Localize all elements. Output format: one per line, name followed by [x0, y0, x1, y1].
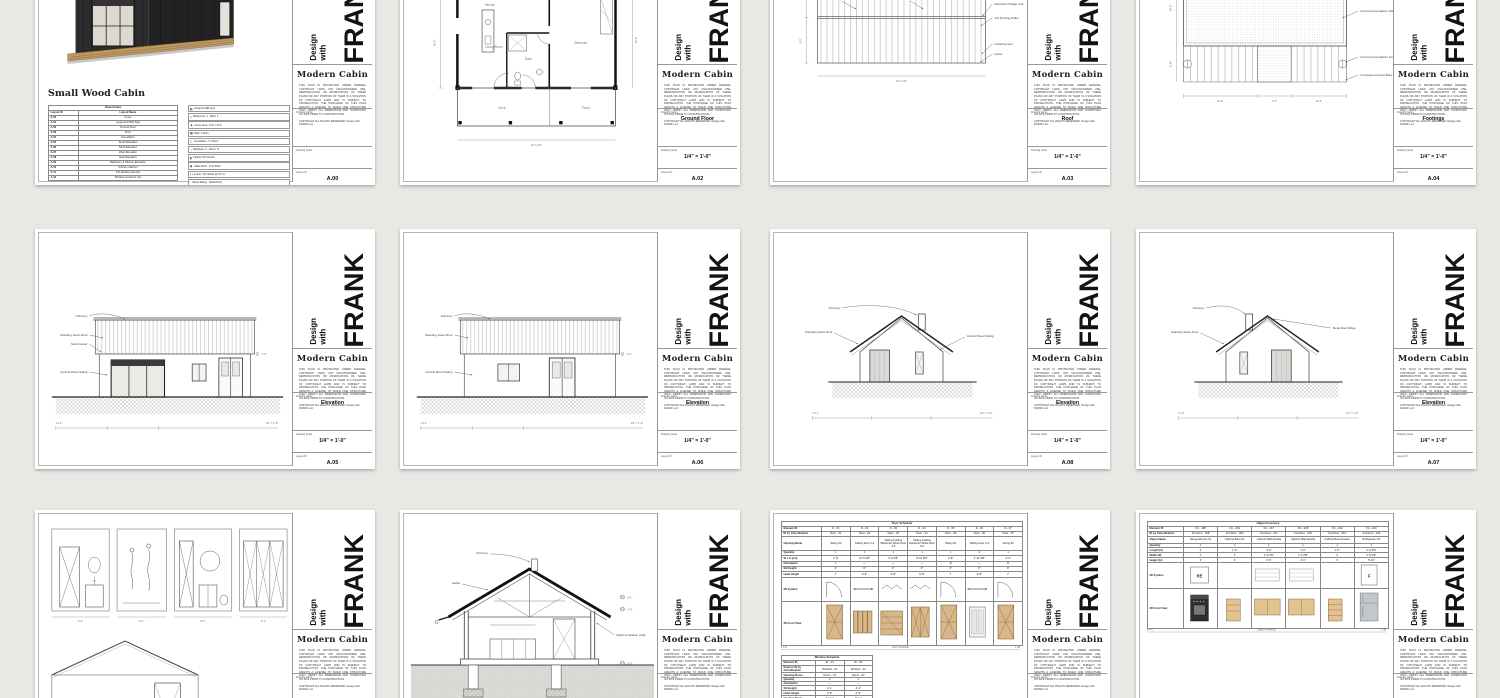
cover-legend-item: ◔Windows: 2 · Doors: 8 [188, 146, 290, 153]
sheet-elevation-south[interactable]: Chimney Standing Seam Roof Metal Gutter … [35, 229, 375, 469]
table-row: A.12Window and Door List [49, 176, 178, 181]
elevation-drawing: Chimney Standing Seam Roof Metal Roof Ri… [1139, 232, 1394, 466]
scale-note: 1/4" = 1'-0" [1346, 411, 1359, 415]
table-cell [965, 578, 994, 602]
scale-bar-label: 0 2 4 [1179, 411, 1185, 415]
logo-design-with: Designwith [674, 318, 693, 345]
table-cell [1184, 563, 1218, 589]
elevation-marker: 7'-6" [626, 352, 631, 356]
legend-icon: △ [190, 139, 192, 143]
logo-design-with: Designwith [309, 318, 328, 345]
row-label: Object Name [1148, 537, 1184, 544]
dimension-label: 16'-5" [1169, 5, 1173, 12]
layout-id-field: Layout IDA.04 [1394, 168, 1473, 182]
project-title: Modern Cabin [658, 630, 737, 649]
annotation-label: Chimney [829, 306, 841, 310]
sheet-index-table: Sheet IndexLayout IDLayout NameA.00Cover… [48, 105, 178, 181]
table-cell [994, 602, 1023, 646]
table-cell: Cabinet Base Drawer [1320, 537, 1354, 544]
scale-note: 1/4" = 1'-0" [631, 421, 644, 425]
annotation-label: Metal Roof Ridge Cap [994, 2, 1023, 6]
legend-icon: ◧ [190, 107, 193, 111]
logo-frank: FRANK [704, 0, 735, 63]
project-title: Modern Cabin [293, 349, 372, 368]
project-title: Modern Cabin [293, 65, 372, 84]
data-table: Door ScheduleElement IDD - 01D - 02D - 0… [781, 521, 1023, 646]
annotation-label: Standing Seam Roof [60, 333, 87, 337]
table-row: 2D Symbol [1148, 563, 1389, 589]
drawing-scale-field: Drawing Scale [293, 146, 372, 169]
legend-text: Windows: 2 · Doors: 8 [193, 148, 219, 151]
dimension-label: 6'-1" [139, 619, 144, 623]
project-title: Modern Cabin [1028, 630, 1107, 649]
drawing-name-field: Drawing Name [293, 108, 372, 147]
project-title: Modern Cabin [1028, 65, 1107, 84]
scale-bar-label: 0 2 4 [421, 421, 427, 425]
sheet-ground-floor[interactable]: 31'-1 1/2" 24'-7" 16'-5" 12'-6" 31'-1 1/… [400, 0, 740, 185]
dimension-label: 7'-6" [1272, 99, 1277, 103]
legend-text: Main 1 Story [194, 132, 209, 135]
logo-frank: FRANK [704, 534, 735, 629]
table-row: 3D Front View [782, 602, 1023, 646]
project-title: Modern Cabin [293, 630, 372, 649]
table-cell [1320, 589, 1354, 629]
title-block: Designwith FRANK Modern Cabin THIS PLAN … [1027, 232, 1107, 466]
elevation-marker: 7'-6" [627, 607, 632, 611]
title-block: Designwith FRANK Modern Cabin THIS PLAN … [1393, 513, 1473, 698]
elevation-drawing: Chimney Standing Seam Roof Vertical Wood… [403, 232, 658, 466]
inventory-table-area: Object InventoryElement IDFU - 188FU - 2… [1139, 513, 1394, 698]
dimension-label: 10'-2" [1316, 99, 1323, 103]
cover-legend-item: ▮Ceiling: 8 ft Interior [188, 154, 290, 161]
drawing-name-field: Drawing NameElevation [658, 392, 737, 431]
table-row: Exterior ID by ClassificationWindow - 01… [782, 666, 873, 673]
title-block: Designwith FRANK Modern Cabin THIS PLAN … [292, 513, 372, 698]
scale-bar-label: 0 2 4 [56, 421, 62, 425]
cover-legend-item: ▦Main 1 Story [188, 130, 290, 137]
table-cell [879, 578, 908, 602]
table-cell [965, 602, 994, 646]
annotation-label: Underlayment [994, 42, 1013, 46]
scale-bar-label: 0 2 4 [813, 411, 819, 415]
annotation-label: Rafter [452, 581, 460, 585]
drawing-scale-field: Drawing Scale1/4" = 1'-0" [1394, 430, 1473, 453]
legend-icon: ◆ [190, 164, 192, 168]
brand-logo: Designwith FRANK [293, 0, 372, 65]
annotation-label: Vertical Wood Siding [60, 370, 88, 374]
legend-icon: ⌂ [190, 115, 192, 119]
table-row: Object NameRange Electric 01Cabinet Base… [1148, 537, 1389, 544]
drawing-name-field: Drawing NameFootings [1394, 108, 1473, 147]
annotation-label: Roof [903, 0, 909, 1]
sheet-section[interactable]: Chimney Rafter Metal Ventilation Grille … [400, 510, 740, 698]
project-title: Modern Cabin [1028, 349, 1107, 368]
scale-note: 1/4" = 1'-0" [980, 411, 993, 415]
brand-logo: Designwith FRANK [1394, 0, 1473, 65]
dimension-label: 8'-5" [799, 38, 803, 43]
logo-frank: FRANK [704, 253, 735, 348]
project-title: Modern Cabin [658, 65, 737, 84]
title-block: Designwith FRANK Modern Cabin THIS PLAN … [1393, 0, 1473, 182]
window-schedule-table: Window ScheduleElement IDW - 01W - 02Ext… [781, 655, 873, 698]
elevation-marker: 0'-0" [627, 661, 632, 665]
interior-elevations-drawing: 3'-2" 6'-1" 8'-2" 6'-1" [38, 513, 293, 698]
logo-frank: FRANK [1074, 0, 1105, 63]
legend-icon: ▮ [190, 156, 192, 160]
dimension-label: 3'-2" [78, 619, 83, 623]
logo-frank: FRANK [1440, 253, 1471, 348]
drawing-name-field: Drawing NameRoof [1028, 108, 1107, 147]
annotation-label: Gutter [994, 52, 1002, 56]
brand-logo: Designwith FRANK [1028, 513, 1107, 630]
layout-id-field: Layout IDA.08 [1028, 452, 1107, 466]
table-cell [908, 578, 937, 602]
layout-id-field: Layout IDA.07 [1394, 452, 1473, 466]
title-block: Designwith FRANK Modern Cabin THIS PLAN … [292, 232, 372, 466]
brand-logo: Designwith FRANK [1394, 513, 1473, 630]
table-cell: Window - 01 [816, 666, 845, 673]
annotation-label: Vertical Wood Siding [967, 334, 995, 338]
logo-design-with: Designwith [1044, 599, 1063, 626]
object-inventory-table: Object InventoryElement IDFU - 188FU - 2… [1147, 521, 1389, 629]
room-label: Living Room [485, 45, 503, 49]
annotation-label: Vertical Wood Siding [425, 370, 453, 374]
layout-id-field: Layout IDA.05 [293, 452, 372, 466]
annotation-label: Standing Seam Roof [805, 330, 832, 334]
table-cell: Swing 90 [822, 537, 851, 551]
logo-frank: FRANK [1074, 253, 1105, 348]
sheet-interior-elevations[interactable]: 3'-2" 6'-1" 8'-2" 6'-1" Designwith FRANK… [35, 510, 375, 698]
cover-legend-item: ◆Gable Roof · 6:12 Pitch [188, 162, 290, 169]
dimension-label: 6'-1" [261, 619, 266, 623]
row-label: 2D Symbol [782, 578, 822, 602]
table-cell: Swing 90 [936, 537, 965, 551]
brand-logo: Designwith FRANK [1028, 232, 1107, 349]
footings-plan-drawing: 30'-8" 16'-5" 5'-10" 10'-2" 7 [1139, 0, 1394, 182]
legend-icon: ▪ [190, 172, 191, 176]
section-drawing: Chimney Rafter Metal Ventilation Grille … [403, 513, 658, 698]
table-row: 2D Symbol [782, 578, 1023, 602]
dimension-label: 16'-5" [433, 40, 437, 47]
legend-text: Gable Roof · 6:12 Pitch [194, 165, 221, 168]
table-cell: Sliding Door 2-3 [850, 537, 879, 551]
drawing-name-field: Drawing NameElevation [293, 392, 372, 431]
elevation-drawing: Chimney Standing Seam Roof Vertical Wood… [773, 232, 1028, 466]
layout-id-field: Layout IDA.06 [658, 452, 737, 466]
sheet-elevation-north[interactable]: Chimney Standing Seam Roof Vertical Wood… [400, 229, 740, 469]
cover-legend-item: △Foundation: 7 x Piers [188, 138, 290, 145]
cover-legend-item: ◧Footprint 384 sq ft [188, 105, 290, 112]
layout-id-field: Layout IDA.00 [293, 168, 372, 182]
logo-design-with: Designwith [1410, 34, 1429, 61]
brand-logo: Designwith FRANK [658, 232, 737, 349]
table-cell: Cabinet Base 01 [1218, 537, 1252, 544]
annotation-label: Metal Gutter [71, 342, 87, 346]
table-cell [1252, 589, 1286, 629]
logo-design-with: Designwith [1044, 34, 1063, 61]
brand-logo: Designwith FRANK [658, 0, 737, 65]
drawing-name-field: Drawing Name [1394, 673, 1473, 698]
logo-design-with: Designwith [309, 34, 328, 61]
drawing-scale-field: Drawing Scale1/4" = 1'-0" [658, 146, 737, 169]
table-cell [850, 578, 879, 602]
room-label: Bath [525, 57, 532, 61]
annotation-label: Concrete Foundation Wall [1360, 9, 1394, 13]
row-label: Exterior ID by Classification [782, 666, 816, 673]
dimension-label: 31'-1 1/2" [531, 143, 542, 147]
row-label: 2D Symbol [1148, 563, 1184, 589]
table-cell: Sliding Door 2-3 [965, 537, 994, 551]
project-title: Modern Cabin [1394, 630, 1473, 649]
legend-icon: ▫ [190, 180, 191, 184]
annotation-label: Concrete Foundation Footing [1360, 55, 1394, 59]
row-label: 3D Front View [782, 602, 822, 646]
logo-design-with: Designwith [674, 599, 693, 626]
drawing-scale-field: Drawing Scale1/4" = 1'-0" [293, 430, 372, 453]
table-cell [850, 602, 879, 646]
sheet-footings[interactable]: 30'-8" 16'-5" 5'-10" 10'-2" 7 [1136, 0, 1476, 185]
sheet-elevation-east[interactable]: Chimney Standing Seam Roof Vertical Wood… [770, 229, 1110, 469]
cover-legend-item: ▲Gross Area: 24 ft x 16 ft [188, 121, 290, 128]
legend-text: Gross Area: 24 ft x 16 ft [194, 124, 221, 127]
layout-id-field: Layout IDA.03 [1028, 168, 1107, 182]
logo-frank: FRANK [339, 0, 370, 63]
table-row: Opening ModeSwing 90Sliding Door 2-3Slid… [782, 537, 1023, 551]
project-title: Modern Cabin [1394, 65, 1473, 84]
elevation-marker: 8'-1" [627, 595, 632, 599]
logo-frank: FRANK [1440, 0, 1471, 63]
table-cell [1252, 563, 1286, 589]
elevation-marker: 7'-6" [261, 352, 266, 356]
legend-text: Footprint 384 sq ft [194, 107, 215, 110]
drawing-name-field: Drawing NameElevation [1394, 392, 1473, 431]
title-block: Designwith FRANK Modern Cabin THIS PLAN … [657, 513, 737, 698]
room-label: Porch [582, 106, 590, 110]
logo-design-with: Designwith [1410, 318, 1429, 345]
legend-text: Ceiling: 8 ft Interior [193, 156, 215, 159]
roof-plan-drawing: 31'-1 1/2" 8'-5" 8'-5" 31'-1 1/2" Chimne… [773, 0, 1028, 182]
legend-icon: ▲ [190, 123, 193, 127]
legend-text: Lumber: 2x6 Studs @ 16" oc [192, 173, 225, 176]
table-cell: Cabinet Wall Double [1252, 537, 1286, 544]
table-cell [908, 602, 937, 646]
door-schedule-table: Door ScheduleElement IDD - 01D - 02D - 0… [781, 521, 1023, 646]
sheet-cover[interactable]: Small Wood Cabin Sheet IndexLayout IDLay… [35, 0, 375, 185]
annotation-label: Chimney [76, 314, 88, 318]
annotation-label: Chimney [1193, 306, 1205, 310]
cover-title: Small Wood Cabin [48, 88, 145, 99]
table-cell [1320, 563, 1354, 589]
annotation-label: Metal Ventilation Grille [616, 633, 646, 637]
legend-text: Wood Siding · Metal Roof [192, 181, 222, 184]
table-cell: Range Electric 01 [1184, 537, 1218, 544]
dimension-label: 10'-2" [1217, 99, 1224, 103]
legend-text: Bedrooms: 1 · Bath: 1 [193, 115, 218, 118]
drawing-scale-field: Drawing Scale1/4" = 1'-0" [1028, 146, 1107, 169]
title-block: Designwith FRANK Modern Cabin THIS PLAN … [657, 0, 737, 182]
table-cell [1286, 589, 1320, 629]
data-table: Object InventoryElement IDFU - 188FU - 2… [1147, 521, 1389, 629]
sheet-object-inventory[interactable]: Object InventoryElement IDFU - 188FU - 2… [1136, 510, 1476, 698]
title-block: Designwith FRANK Modern Cabin THIS PLAN … [1027, 0, 1107, 182]
table-cell [1354, 563, 1388, 589]
sheet-roof[interactable]: 31'-1 1/2" 8'-5" 8'-5" 31'-1 1/2" Chimne… [770, 0, 1110, 185]
dimension-label: 8'-2" [201, 619, 206, 623]
logo-design-with: Designwith [1044, 318, 1063, 345]
table-cell [822, 578, 851, 602]
legend-icon: ◔ [190, 148, 192, 152]
table-cell: Window - 02 [844, 666, 873, 673]
brand-logo: Designwith FRANK [1028, 0, 1107, 65]
table-row: 3D Front View [1148, 589, 1389, 629]
annotation-label: Chimney [441, 314, 453, 318]
drawing-scale-field: Drawing Scale1/4" = 1'-0" [1028, 430, 1107, 453]
cover-legend-item: ⌂Bedrooms: 1 · Bath: 1 [188, 113, 290, 120]
table-cell: Refrigerator 01 [1354, 537, 1388, 544]
cover-legend: ◧Footprint 384 sq ft⌂Bedrooms: 1 · Bath:… [188, 105, 290, 185]
table-cell [1218, 589, 1252, 629]
row-label: Opening Mode [782, 537, 822, 551]
logo-frank: FRANK [1440, 534, 1471, 629]
row-label: A.12 [49, 176, 79, 181]
drawing-name-field: Drawing Name [293, 673, 372, 698]
brand-logo: Designwith FRANK [1394, 232, 1473, 349]
elevation-drawing: Chimney Standing Seam Roof Metal Gutter … [38, 232, 293, 466]
legend-icon: ▦ [190, 131, 193, 135]
title-block: Designwith FRANK Modern Cabin THIS PLAN … [1027, 513, 1107, 698]
logo-design-with: Designwith [1410, 599, 1429, 626]
logo-frank: FRANK [339, 253, 370, 348]
logo-frank: FRANK [339, 534, 370, 629]
plan-set-grid: Small Wood Cabin Sheet IndexLayout IDLay… [0, 0, 1500, 698]
table-cell: Swing 90 [994, 537, 1023, 551]
row-label: 3D Front View [1148, 589, 1184, 629]
cover-legend-item: ▪Lumber: 2x6 Studs @ 16" oc [188, 171, 290, 178]
legend-text: Foundation: 7 x Piers [194, 140, 219, 143]
annotation-label: Standing Seam Roof [1171, 330, 1198, 334]
table-cell [822, 602, 851, 646]
table-cell: Sliding Folding Wardrobe White Door 4-6 [908, 537, 937, 551]
table-cell [879, 602, 908, 646]
brand-logo: Designwith FRANK [293, 232, 372, 349]
table-cell [1184, 589, 1218, 629]
table-cell [936, 602, 965, 646]
dimension-label: 12'-6" [634, 37, 638, 44]
drawing-name-field: Drawing NameGround Floor [658, 108, 737, 147]
title-block: Designwith FRANK Modern Cabin THIS PLAN … [657, 232, 737, 466]
annotation-label: 2x6 Roofing Rafter [994, 16, 1019, 20]
dimension-label: 5'-10" [1169, 61, 1173, 68]
room-label: Deck [498, 106, 506, 110]
schedule-tables: Door ScheduleElement IDD - 01D - 02D - 0… [773, 513, 1028, 698]
logo-frank: FRANK [1074, 534, 1105, 629]
dimension-label: 31'-1 1/2" [896, 79, 907, 83]
ground-floor-plan-drawing: 31'-1 1/2" 24'-7" 16'-5" 12'-6" 31'-1 1/… [403, 0, 658, 182]
annotation-label: Metal Roof Ridge [1333, 326, 1356, 330]
cover-legend-item: ▫Wood Siding · Metal Roof [188, 179, 290, 185]
table-cell: Cabinet Wall Double [1286, 537, 1320, 544]
drawing-name-field: Drawing NameElevation [1028, 392, 1107, 431]
drawing-name-field: Drawing Name [658, 673, 737, 698]
table-cell [1286, 563, 1320, 589]
sheet-elevation-west[interactable]: Chimney Standing Seam Roof Metal Roof Ri… [1136, 229, 1476, 469]
annotation-label: Compacted Gravel Base [1360, 73, 1392, 77]
data-table: Sheet IndexLayout IDLayout NameA.00Cover… [48, 105, 178, 181]
cover-art: Small Wood Cabin Sheet IndexLayout IDLay… [38, 0, 293, 182]
project-title: Modern Cabin [1394, 349, 1473, 368]
drawing-scale-field: Drawing Scale1/4" = 1'-0" [658, 430, 737, 453]
layout-id-field: Layout IDA.02 [658, 168, 737, 182]
annotation-label: Standing Seam Roof [425, 333, 452, 337]
project-title: Modern Cabin [658, 349, 737, 368]
table-cell [1218, 563, 1252, 589]
logo-design-with: Designwith [309, 599, 328, 626]
table-cell: Window and Door List [79, 176, 178, 181]
table-cell: Sliding Folding Wardrobe White Door 4-6 [879, 537, 908, 551]
drawing-name-field: Drawing Name [1028, 673, 1107, 698]
logo-design-with: Designwith [674, 34, 693, 61]
table-cell [936, 578, 965, 602]
annotation-label: Chimney [829, 0, 841, 1]
drawing-scale-field: Drawing Scale1/4" = 1'-0" [1394, 146, 1473, 169]
title-block: Designwith FRANK Modern Cabin THIS PLAN … [1393, 232, 1473, 466]
brand-logo: Designwith FRANK [658, 513, 737, 630]
room-label: Bedroom [575, 41, 588, 45]
room-label: Kitchen [485, 3, 496, 7]
data-table: Window ScheduleElement IDW - 01W - 02Ext… [781, 655, 873, 698]
brand-logo: Designwith FRANK [293, 513, 372, 630]
sheet-door-schedule[interactable]: Door ScheduleElement IDD - 01D - 02D - 0… [770, 510, 1110, 698]
title-block: Designwith FRANK Modern Cabin THIS PLAN … [292, 0, 372, 182]
annotation-label: Chimney [476, 551, 488, 555]
table-cell [994, 578, 1023, 602]
scale-note: 1/4" = 1'-0" [266, 421, 279, 425]
table-cell [1354, 589, 1388, 629]
